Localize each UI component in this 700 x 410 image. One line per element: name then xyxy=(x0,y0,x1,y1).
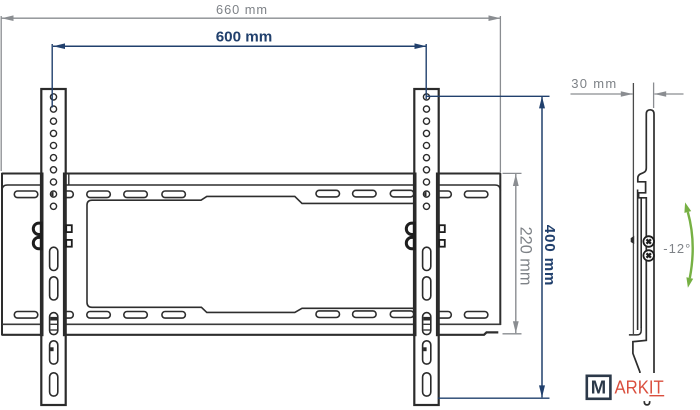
svg-text:30 mm: 30 mm xyxy=(571,76,617,91)
svg-text:400 mm: 400 mm xyxy=(541,225,558,286)
svg-text:220 mm: 220 mm xyxy=(517,227,535,286)
svg-text:600 mm: 600 mm xyxy=(216,29,273,46)
svg-text:660 mm: 660 mm xyxy=(216,2,268,17)
svg-text:M: M xyxy=(591,377,606,398)
svg-text:ARKIT: ARKIT xyxy=(615,376,664,397)
svg-text:-12°: -12° xyxy=(663,241,691,256)
